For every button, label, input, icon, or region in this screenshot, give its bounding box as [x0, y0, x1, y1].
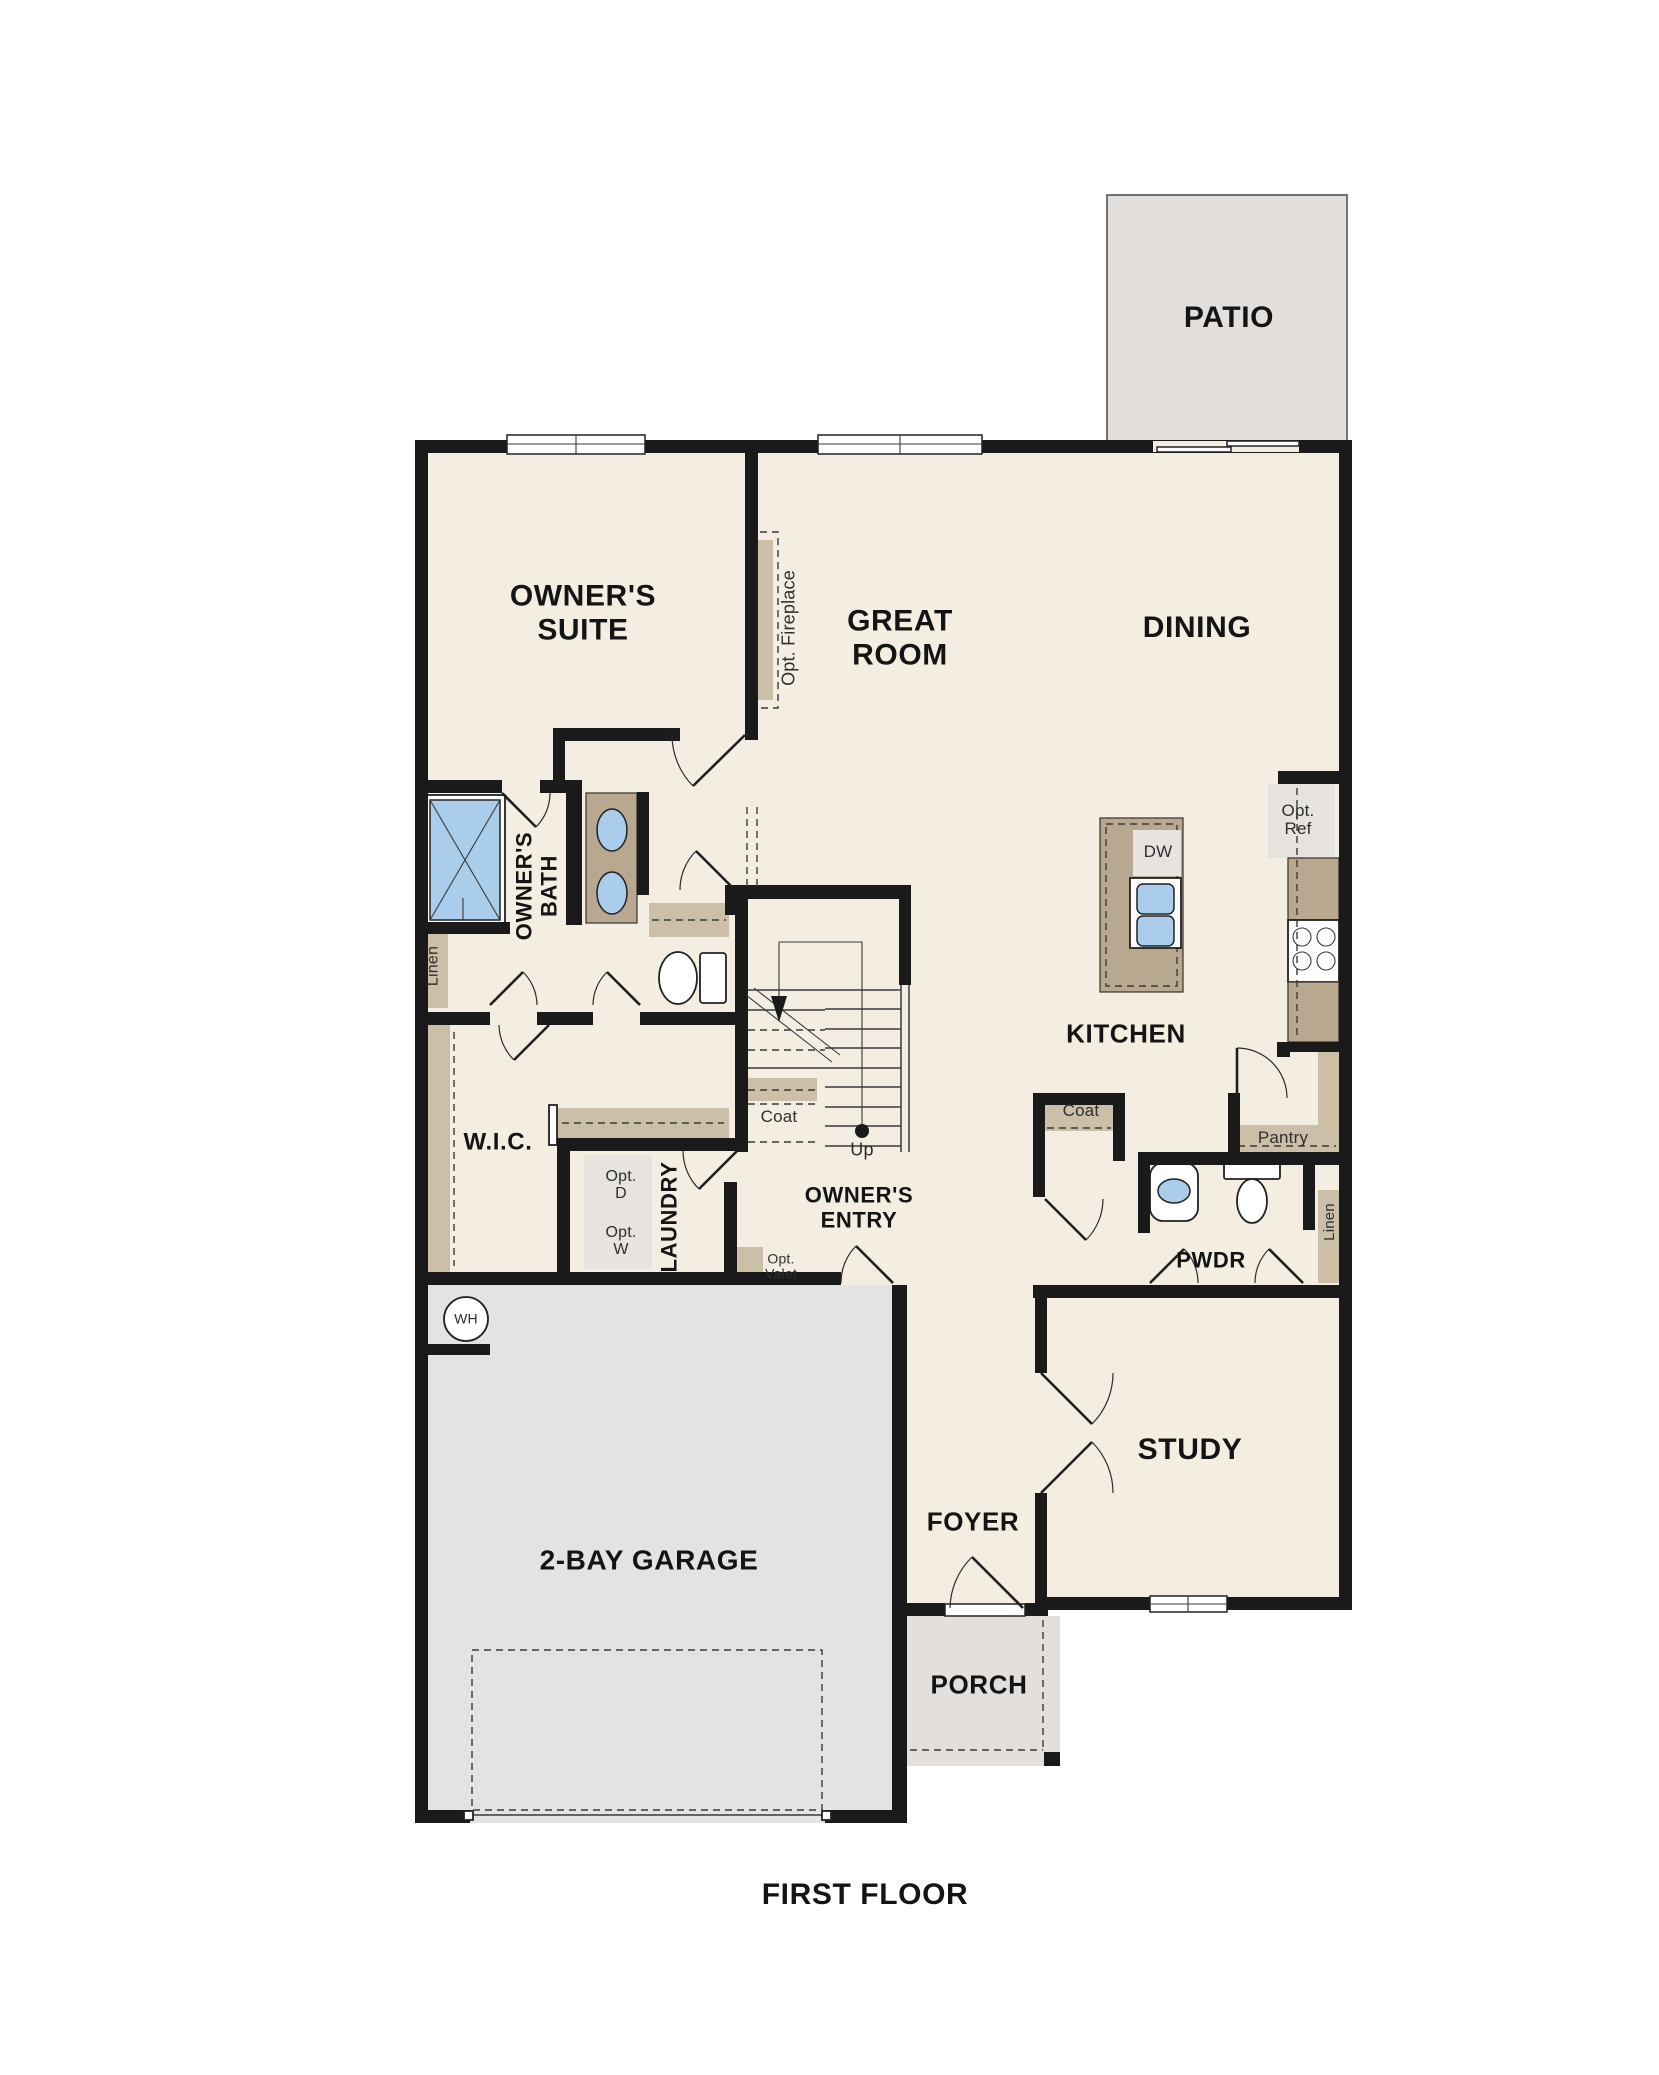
- label-owners-entry: OWNER'S ENTRY: [805, 1183, 913, 1232]
- wall-stairs-right: [899, 885, 911, 985]
- label-great-room: GREAT ROOM: [847, 604, 953, 671]
- plan-title: FIRST FLOOR: [762, 1878, 969, 1912]
- wall-garage-right: [892, 1285, 907, 1823]
- wall-study-left-upper: [1035, 1285, 1047, 1373]
- wall-kitchen-stub-top: [1278, 771, 1339, 784]
- label-up: Up: [850, 1141, 873, 1160]
- laundry-shelf: [557, 1108, 729, 1138]
- label-owners-bath: OWNER'S BATH: [512, 832, 561, 940]
- wall-suite-bottom: [553, 728, 680, 741]
- wall-bath-top-mid: [540, 780, 568, 793]
- label-foyer: FOYER: [927, 1507, 1020, 1536]
- wall-left: [415, 440, 428, 1823]
- pwdr-toilet-bowl: [1237, 1179, 1267, 1223]
- coat-stairs-shelf: [748, 1078, 817, 1101]
- wall-bath-bottom-2: [537, 1012, 593, 1025]
- wic-shelf-left: [428, 1025, 450, 1272]
- wall-pwdr-right: [1303, 1165, 1315, 1230]
- pwdr-sink-bowl: [1158, 1179, 1190, 1203]
- window-study: [1150, 1596, 1227, 1612]
- wc-toilet-tank: [700, 953, 726, 1003]
- wall-laundry-top: [557, 1138, 737, 1151]
- label-study: STUDY: [1138, 1433, 1243, 1467]
- label-owners-suite: OWNER'S SUITE: [510, 579, 656, 646]
- wall-wh-nook: [428, 1344, 490, 1355]
- label-water-heater: WH: [454, 1312, 478, 1327]
- wall-vanity-right: [637, 792, 649, 895]
- pantry-shelf-right: [1318, 1052, 1339, 1128]
- label-kitchen: KITCHEN: [1066, 1019, 1186, 1048]
- wall-bath-bottom-1: [415, 1012, 490, 1025]
- wc-toilet-bowl: [659, 952, 697, 1004]
- wall-right: [1339, 440, 1352, 1610]
- wall-pwdr-top: [1138, 1152, 1339, 1165]
- wall-coat-left: [1033, 1093, 1045, 1197]
- vanity-sink-1: [597, 809, 627, 851]
- wall-pantry-left: [1228, 1093, 1240, 1155]
- wall-bath-top-left: [415, 780, 502, 793]
- wall-laundry-right: [724, 1182, 737, 1285]
- label-coat-closet: Coat: [1063, 1102, 1100, 1120]
- wall-stairs-top: [735, 885, 911, 899]
- wall-shower-bottom: [415, 922, 510, 934]
- label-laundry: LAUNDRY: [658, 1162, 683, 1273]
- wall-study-top: [1033, 1285, 1340, 1298]
- wall-laundry-left: [557, 1138, 570, 1285]
- label-coat-under-stairs: Coat: [761, 1108, 798, 1126]
- label-pwdr: PWDR: [1176, 1249, 1246, 1274]
- label-opt-fireplace: Opt. Fireplace: [780, 570, 799, 686]
- floor-plan: PATIO OWNER'S SUITE GREAT ROOM DINING Op…: [0, 0, 1659, 2075]
- island-sink-bowl-2: [1137, 916, 1174, 946]
- label-dw: DW: [1144, 843, 1173, 861]
- label-wic: W.I.C.: [464, 1130, 533, 1157]
- wall-stairs-left: [735, 899, 748, 1152]
- up-marker-dot: [855, 1124, 869, 1138]
- laundry-pilaster: [549, 1105, 557, 1145]
- label-opt-dryer: Opt. D: [605, 1169, 636, 1203]
- vanity-sink-2: [597, 872, 627, 914]
- label-linen-left: Linen: [426, 946, 443, 986]
- wall-counter-bottom: [1288, 1042, 1339, 1052]
- floor-plan-drawing: [0, 0, 1659, 2075]
- label-opt-ref: Opt. Ref: [1282, 802, 1315, 838]
- label-pantry: Pantry: [1258, 1129, 1308, 1147]
- porch-post: [1044, 1752, 1060, 1766]
- window-great-room: [818, 435, 982, 454]
- counter-upper: [1288, 858, 1339, 920]
- wall-coat-right: [1113, 1093, 1125, 1161]
- label-opt-valet: Opt. Valet: [765, 1251, 797, 1280]
- wall-pwdr-left: [1138, 1165, 1150, 1233]
- island-sink-bowl-1: [1137, 884, 1174, 914]
- label-opt-washer: Opt. W: [605, 1225, 636, 1259]
- patio-sliding-door: [1153, 441, 1299, 452]
- garage-door-post-right: [822, 1811, 831, 1820]
- wall-garage-bottom-left: [415, 1810, 470, 1823]
- label-dining: DINING: [1143, 611, 1252, 645]
- label-garage: 2-BAY GARAGE: [540, 1544, 759, 1575]
- wall-porch-top-left: [907, 1603, 945, 1616]
- wall-suite-divider: [745, 440, 758, 740]
- counter-lower: [1288, 982, 1339, 1042]
- label-patio: PATIO: [1184, 301, 1274, 335]
- wall-vanity-left: [566, 780, 582, 925]
- label-linen-right: Linen: [1322, 1203, 1338, 1241]
- label-porch: PORCH: [931, 1670, 1028, 1699]
- wall-bath-bottom-3: [640, 1012, 745, 1025]
- garage-door-post-left: [464, 1811, 473, 1820]
- wall-study-left-lower: [1035, 1493, 1047, 1608]
- window-suite: [507, 435, 645, 454]
